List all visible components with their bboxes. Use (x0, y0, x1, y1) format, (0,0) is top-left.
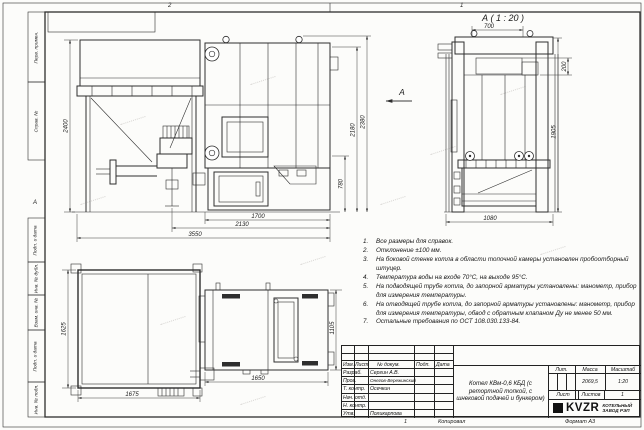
logo-square-icon (553, 403, 563, 413)
note-item: 3.На боковой стенке котла в области топо… (360, 256, 637, 274)
front-view-dimensions: 2400 780 2180 2380 1700 2130 3550 (64, 36, 372, 242)
margin-label-sprav: Справ. № (28, 82, 45, 160)
tb-col-data: Дата (436, 362, 450, 368)
tb-lit-label: Лит. (548, 367, 575, 373)
dim-1905: 1905 (552, 125, 558, 139)
company-name: КОТЕЛЬНЫЙ ЗАВОД РЭП (602, 403, 632, 414)
view-direction-arrow-label: А (398, 87, 405, 97)
dim-780: 780 (339, 178, 345, 189)
dim-1625: 1625 (62, 322, 68, 336)
tb-name: Сергин А.В. (370, 370, 399, 376)
zone-letter-a: А (33, 200, 37, 206)
tb-role: Нач. отд. (343, 395, 366, 401)
tb-scale-value: 1:20 (605, 379, 641, 385)
dim-1675: 1675 (125, 392, 139, 398)
margin-label-perv-primen: Перв. примен. (28, 12, 45, 82)
tb-mass-label: Масса (575, 367, 605, 373)
document-title: Котел КВм-0,6 КБД (с ретортной топкой, с… (454, 366, 547, 417)
tb-name: Осечкин (370, 386, 390, 392)
footer-copied-label: Копировал (438, 419, 465, 425)
dim-3550: 3550 (188, 232, 202, 238)
logo-text: KVZR (566, 402, 599, 414)
note-item: 4.Температура воды на входе 70°С, на вых… (360, 274, 637, 283)
tb-name: Поликарпова (370, 411, 402, 417)
tb-col-podp: Подп. (416, 362, 430, 368)
tb-scale-label: Масштаб (605, 367, 641, 373)
margin-label-podp-data-2: Подп. и дата (28, 330, 45, 382)
dim-1700: 1700 (251, 214, 265, 220)
tb-sheet-label: Лист (548, 392, 578, 398)
dim-1080: 1080 (483, 216, 497, 222)
margin-label-inv-podl: Инв. № подл. (28, 382, 45, 417)
note-item: 5.На подводящей трубе котла, до запорной… (360, 283, 637, 301)
tb-col-doc: № докум. (377, 362, 400, 368)
zone-number-2: 2 (168, 3, 171, 9)
margin-label-inv-dubl: Инв. № дубл. (28, 262, 45, 295)
tb-role: Утв. (343, 411, 355, 417)
tb-role: Н. контр. (343, 403, 366, 409)
dim-700: 700 (484, 24, 495, 30)
side-view-a: А ( 1 : 20 ) (438, 13, 562, 212)
rotated-designation-block (48, 12, 155, 32)
top-view (71, 264, 334, 396)
note-item: 1.Все размеры для справок. (360, 238, 637, 247)
side-view-label: А ( 1 : 20 ) (481, 13, 524, 23)
tb-name: Онегов-Вережинский (370, 378, 416, 383)
dim-1650: 1650 (251, 376, 265, 382)
margin-label-podp-data-1: Подп. и дата (28, 218, 45, 262)
dim-1105: 1105 (330, 321, 336, 335)
dim-2130: 2130 (234, 222, 249, 228)
dim-2180: 2180 (351, 123, 357, 138)
note-item: 6.На отводящей трубе котла, до запорной … (360, 301, 637, 319)
tb-role: Разраб. (343, 370, 362, 376)
tb-role: Пров. (343, 378, 357, 384)
footer-format-label: Формат А3 (565, 419, 595, 425)
note-item: 7.Остальные требования по ОСТ 108.030.13… (360, 318, 637, 327)
note-item: 2.Отклонение ±100 мм. (360, 247, 637, 256)
tb-col-list: Лист (355, 362, 368, 368)
tb-role: Т. контр. (343, 386, 365, 392)
footer-sheet-number: 1 (404, 419, 407, 425)
zone-number-1: 1 (460, 3, 463, 9)
title-block: Изм. Лист № докум. Подп. Дата Разраб. Се… (341, 345, 640, 417)
technical-notes: 1.Все размеры для справок. 2.Отклонение … (360, 238, 637, 327)
tb-col-izm: Изм. (343, 362, 354, 368)
front-view (72, 36, 340, 212)
company-logo: KVZR КОТЕЛЬНЫЙ ЗАВОД РЭП (548, 399, 640, 417)
dim-2400: 2400 (64, 119, 70, 134)
margin-label-vzam-inv: Взам. инв. № (28, 295, 45, 330)
tb-sheets-value: 1 (604, 392, 641, 398)
tb-sheets-label: Листов (578, 392, 604, 398)
drawing-sheet: 2400 780 2180 2380 1700 2130 3550 А ( 1 … (0, 0, 644, 430)
dim-2380: 2380 (361, 115, 367, 130)
dim-200: 200 (562, 61, 568, 73)
tb-mass-value: 2069,5 (575, 379, 605, 385)
